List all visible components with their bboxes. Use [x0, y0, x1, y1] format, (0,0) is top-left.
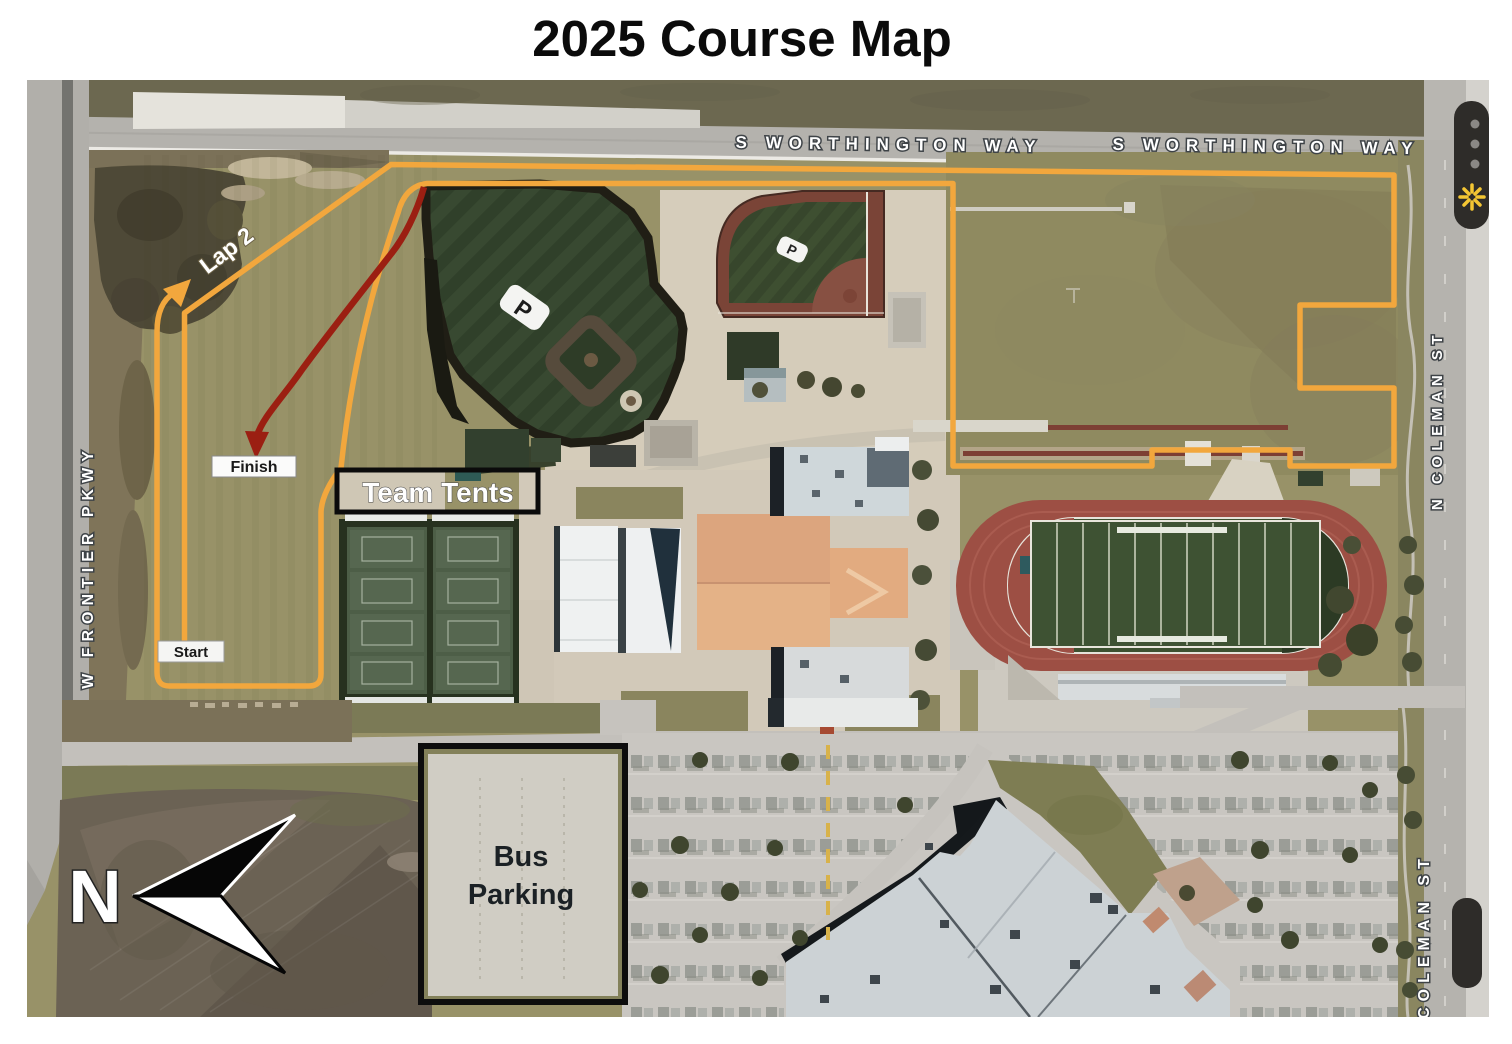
svg-text:N: N: [68, 855, 121, 938]
svg-text:Team Tents: Team Tents: [362, 477, 513, 508]
svg-text:2025 Course Map: 2025 Course Map: [532, 10, 952, 67]
svg-text:Bus: Bus: [494, 841, 549, 873]
svg-text:Parking: Parking: [468, 879, 574, 911]
svg-text:COLEMAN ST: COLEMAN ST: [1416, 853, 1433, 1019]
svg-text:W FRONTIER PKWY: W FRONTIER PKWY: [80, 445, 97, 689]
svg-text:N COLEMAN ST: N COLEMAN ST: [1429, 330, 1446, 510]
svg-text:Finish: Finish: [230, 459, 277, 476]
svg-text:Start: Start: [174, 644, 208, 661]
